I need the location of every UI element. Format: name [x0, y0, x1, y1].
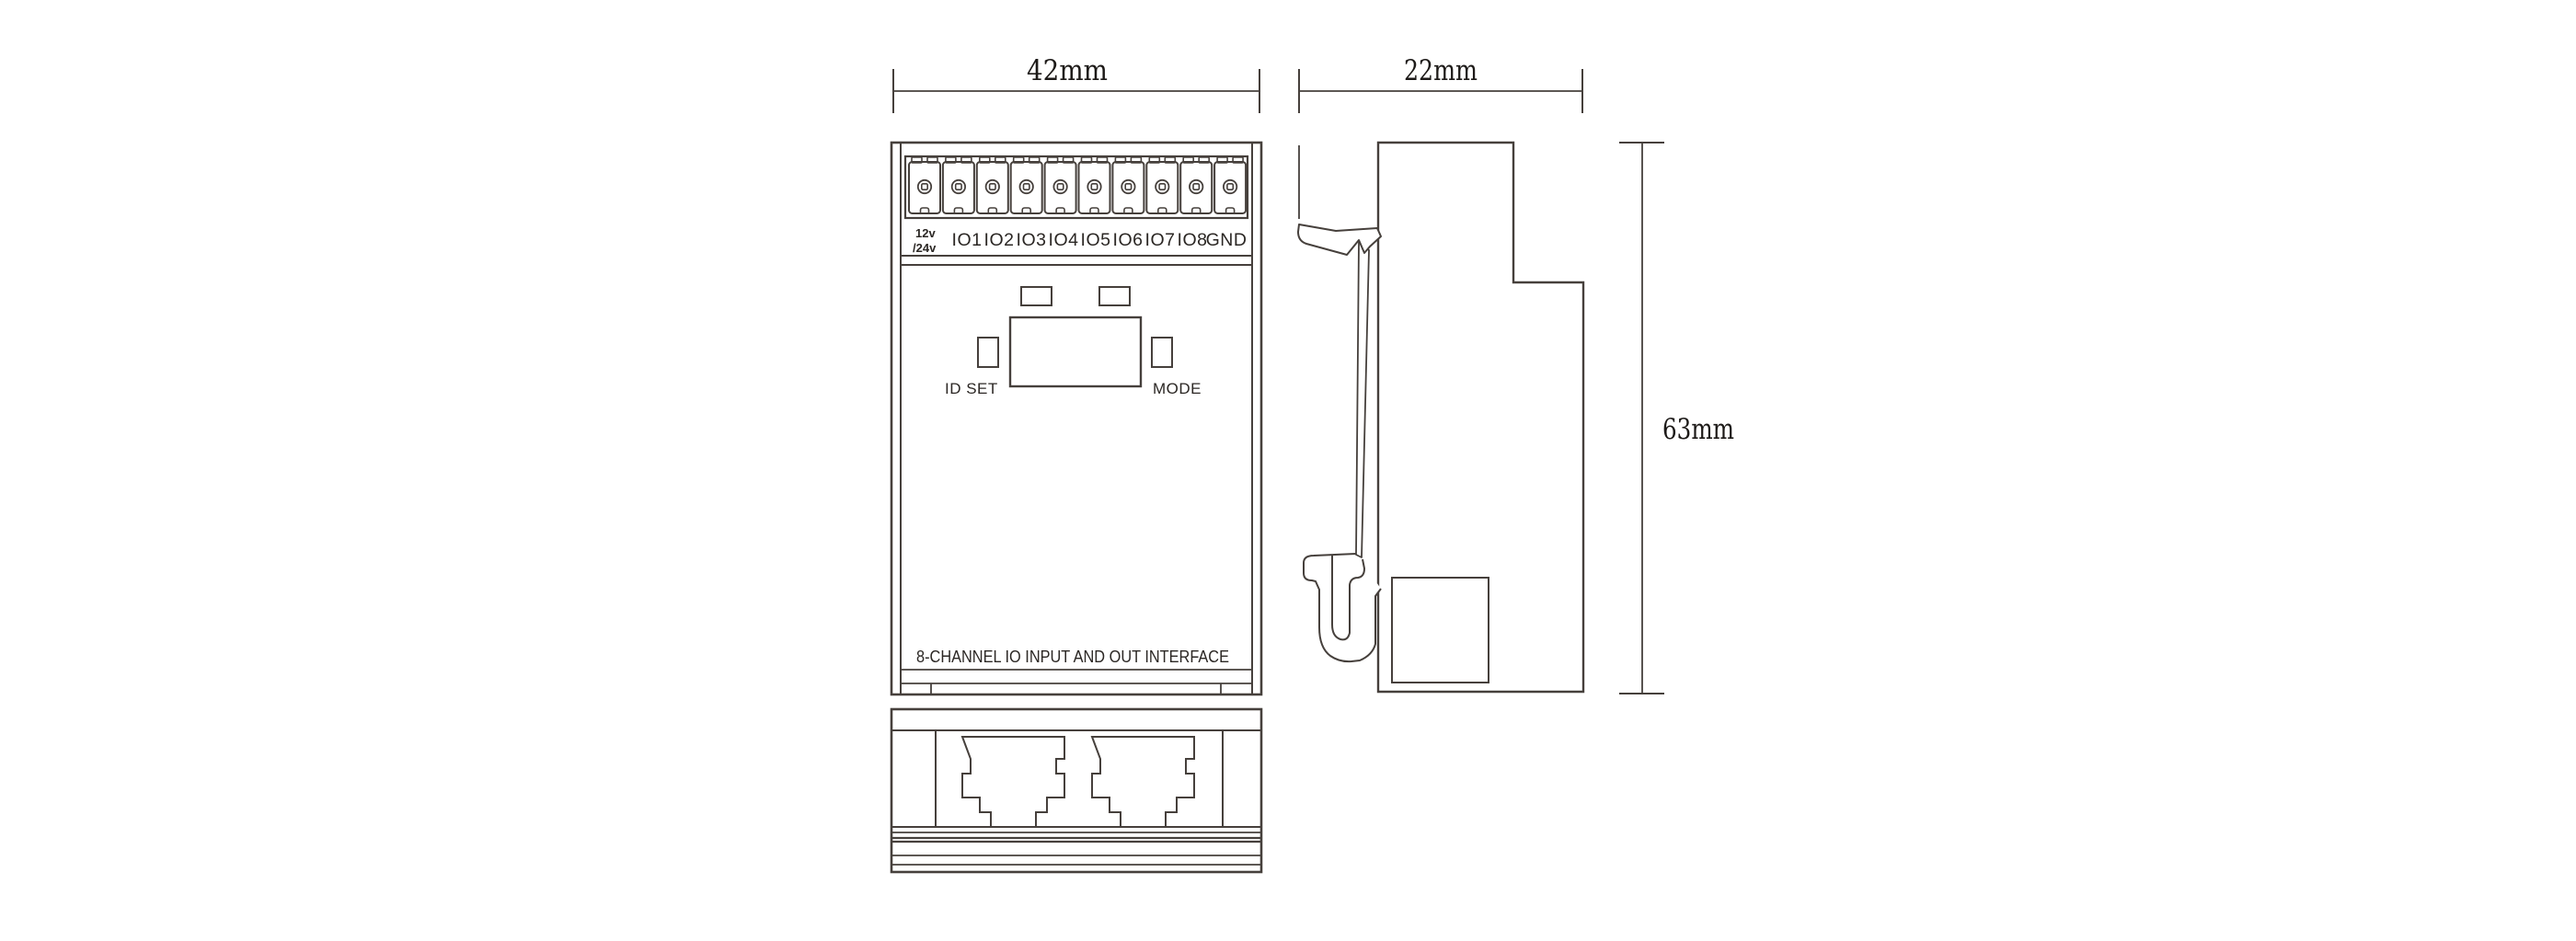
power-label-12v: 12v — [915, 226, 936, 240]
id-set-label: ID SET — [945, 380, 998, 397]
dimension-42mm: 42mm — [893, 54, 1259, 113]
io-label-7: IO7 — [1145, 230, 1176, 250]
io-label-6: IO6 — [1113, 230, 1144, 250]
io-label-3: IO3 — [1017, 230, 1047, 250]
dim-label-63mm: 63mm — [1662, 413, 1734, 446]
io-module-dimension-drawing: 42mm 22mm 63mm — [0, 0, 2576, 941]
dim-label-42mm: 42mm — [1027, 54, 1108, 87]
mode-label: MODE — [1153, 380, 1202, 397]
power-label-24v: /24v — [913, 241, 937, 255]
dimension-63mm: 63mm — [1619, 143, 1734, 694]
bottom-outline — [891, 709, 1261, 872]
io-label-5: IO5 — [1081, 230, 1111, 250]
io-label-2: IO2 — [984, 230, 1015, 250]
gnd-label: GND — [1206, 230, 1248, 250]
product-title: 8-CHANNEL IO INPUT AND OUT INTERFACE — [916, 648, 1229, 666]
technical-drawing-page: 42mm 22mm 63mm — [0, 0, 2576, 941]
bottom-view — [891, 709, 1261, 872]
side-view — [1298, 143, 1583, 692]
io-label-1: IO1 — [952, 230, 983, 250]
din-clip-arm — [1356, 242, 1369, 557]
io-label-4: IO4 — [1049, 230, 1079, 250]
front-view: 12v /24v IO1 IO2 IO3 IO4 IO5 IO6 IO7 IO8… — [891, 143, 1261, 694]
dim-label-22mm: 22mm — [1404, 54, 1478, 87]
front-outline — [891, 143, 1261, 694]
io-label-8: IO8 — [1178, 230, 1208, 250]
din-clip-hook — [1304, 554, 1381, 661]
side-body-outline — [1378, 143, 1583, 692]
